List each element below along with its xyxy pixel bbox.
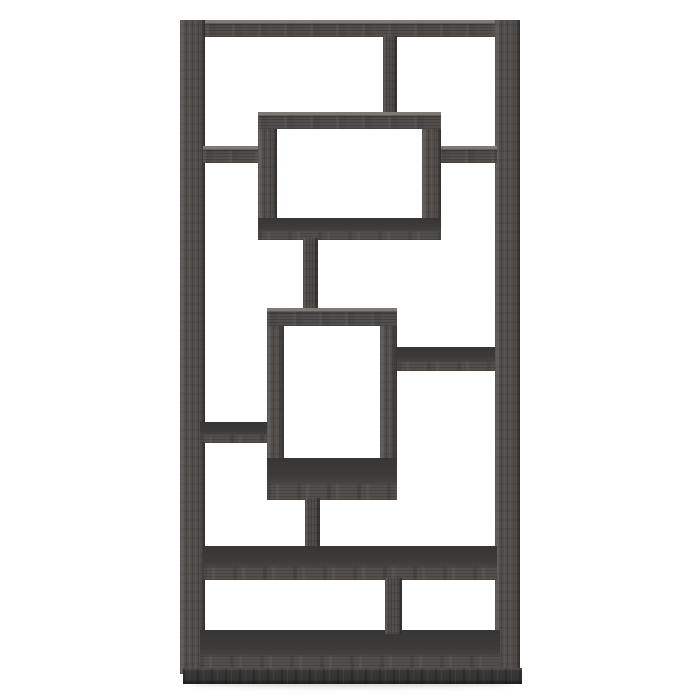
upper-right-shelf [439, 146, 497, 163]
bottom-board [200, 630, 500, 672]
middle-left-shelf [200, 422, 267, 443]
upper-left-shelf [203, 146, 261, 163]
lower-box-top [267, 308, 397, 326]
wide-lower-shelf [203, 546, 497, 580]
right-side-panel [495, 20, 520, 674]
product-image-canvas [0, 0, 700, 700]
base-kick [183, 668, 522, 684]
bottom-right-divider [385, 578, 402, 634]
top-center-divider [383, 36, 397, 114]
upper-box-top [258, 112, 441, 129]
upper-connector-post [303, 238, 318, 310]
middle-right-shelf [397, 347, 495, 371]
lower-box-bottom [267, 458, 397, 500]
left-side-panel [180, 20, 205, 674]
top-board [180, 20, 520, 37]
lower-connector-post [305, 498, 320, 550]
upper-box-bottom [258, 218, 441, 240]
